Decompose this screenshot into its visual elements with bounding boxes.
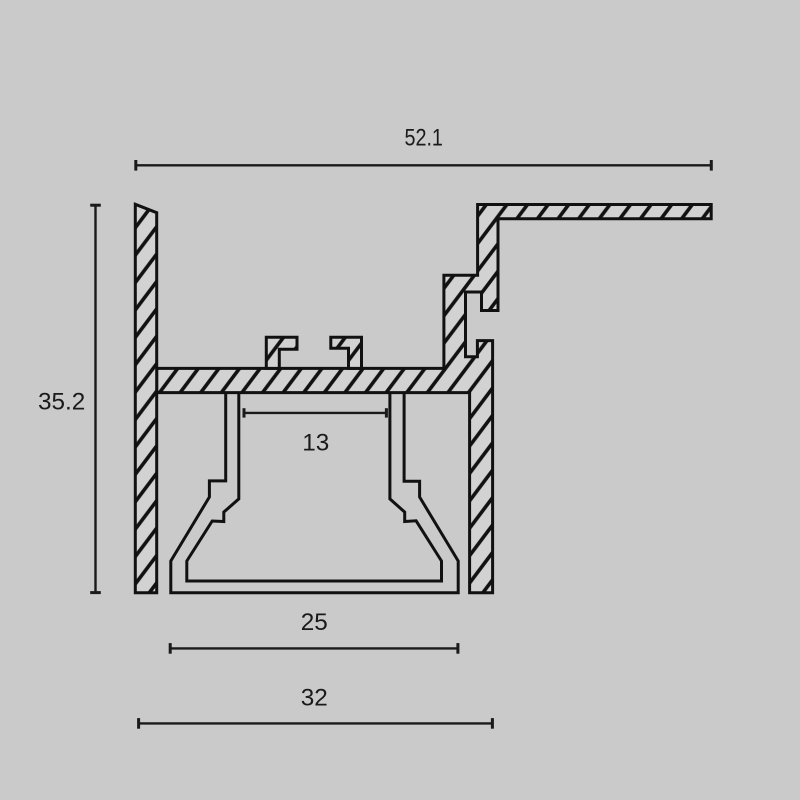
svg-text:52.1: 52.1	[404, 125, 443, 152]
svg-text:25: 25	[301, 609, 328, 636]
svg-text:35.2: 35.2	[38, 389, 85, 416]
svg-text:13: 13	[302, 430, 329, 457]
svg-text:32: 32	[301, 684, 328, 711]
